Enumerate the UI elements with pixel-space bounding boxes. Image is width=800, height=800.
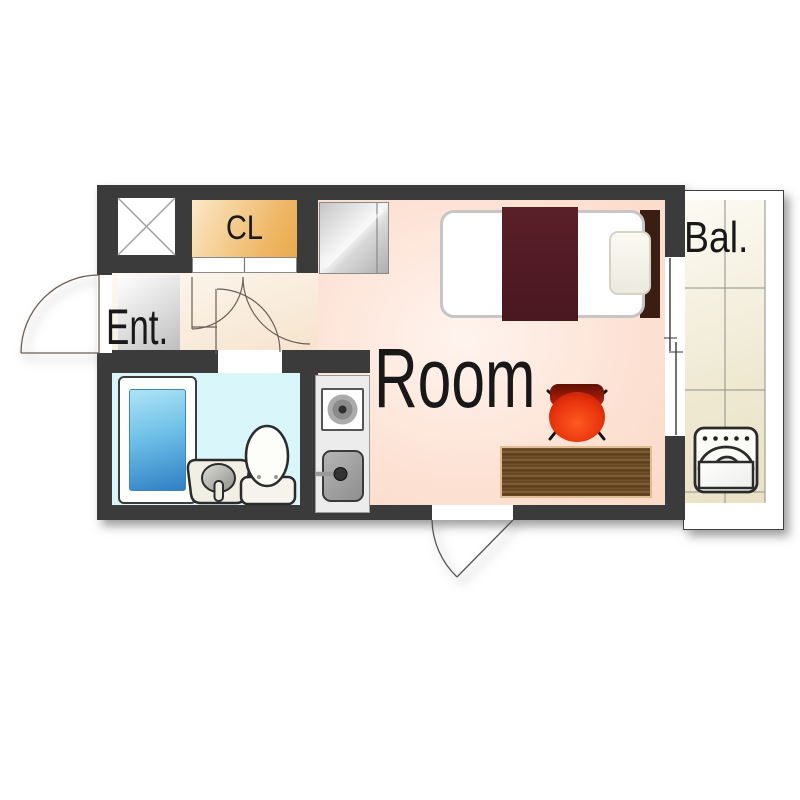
- balcony-label: Bal.: [684, 216, 748, 260]
- floorplan: CL Ent. Room Bal.: [0, 0, 800, 800]
- toilet-icon: [241, 426, 295, 504]
- shaft-x-lines: [118, 198, 175, 255]
- entrance-label: Ent.: [106, 302, 168, 352]
- closet-label: CL: [200, 211, 289, 245]
- balcony-window-panels: [664, 258, 683, 435]
- chair-icon: [548, 384, 606, 442]
- kitchen-faucet: [315, 468, 347, 481]
- south-door-icon: [432, 520, 513, 577]
- kitchen-stove-burner: [328, 395, 358, 425]
- floorplan-canvas: { "floorplan": { "title": "one-room apar…: [0, 0, 800, 800]
- room-label: Room: [374, 336, 535, 420]
- hall-door-swings: [192, 277, 310, 354]
- washing-machine-icon: [695, 428, 757, 492]
- entrance-door-icon: [21, 275, 99, 353]
- refrigerator-detail: [325, 203, 383, 273]
